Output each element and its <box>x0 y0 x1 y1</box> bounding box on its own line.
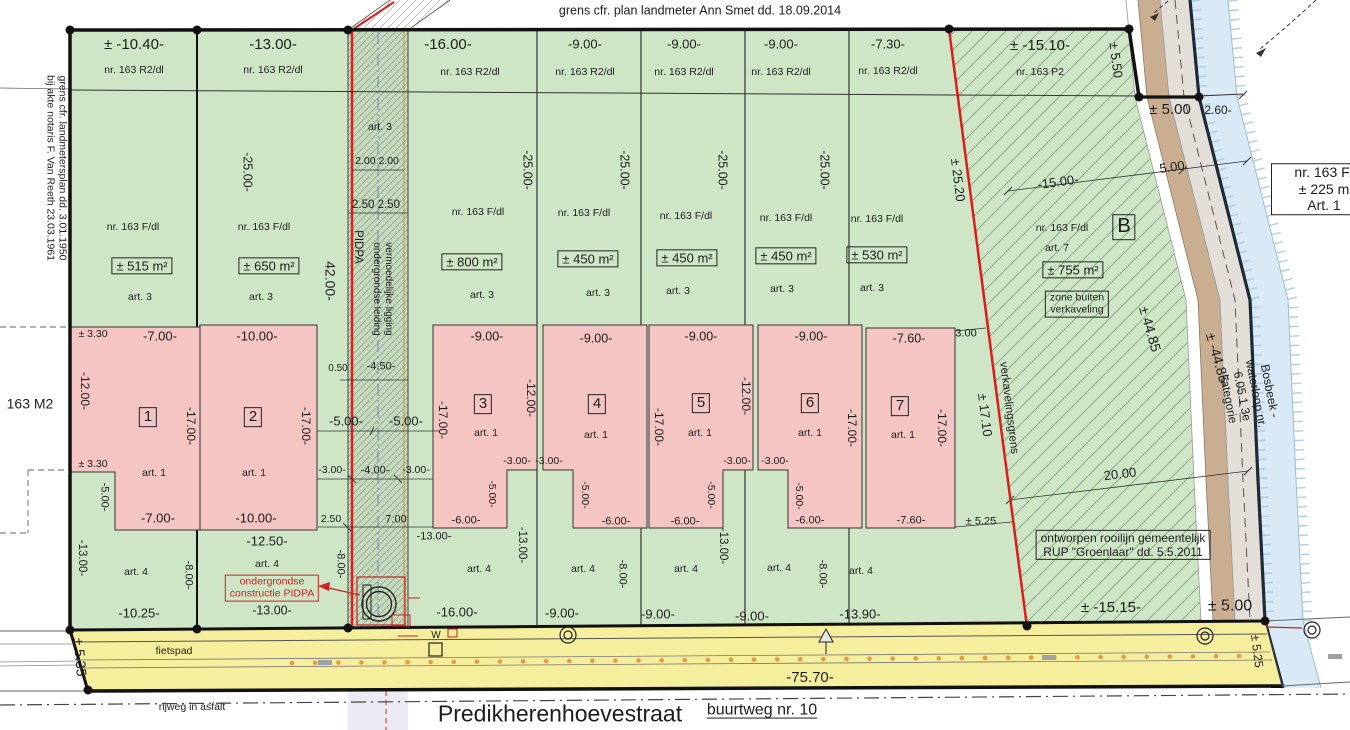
road-centerline <box>0 694 1350 705</box>
flow-arrow-icon <box>1260 0 1316 49</box>
manhole-icon <box>1304 622 1320 638</box>
house-2 <box>200 325 317 530</box>
house-7 <box>866 328 955 528</box>
plan-drawing <box>0 0 1350 730</box>
plan-canvas: grens cfr. plan landmeter Ann Smet dd. 1… <box>0 0 1350 730</box>
